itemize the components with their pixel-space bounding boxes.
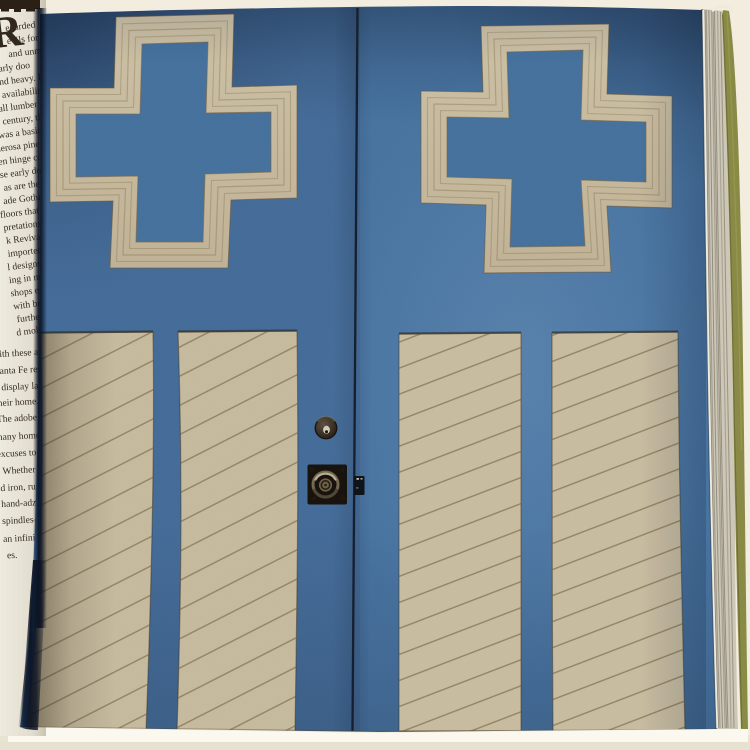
svg-text:es.: es. (7, 550, 18, 562)
